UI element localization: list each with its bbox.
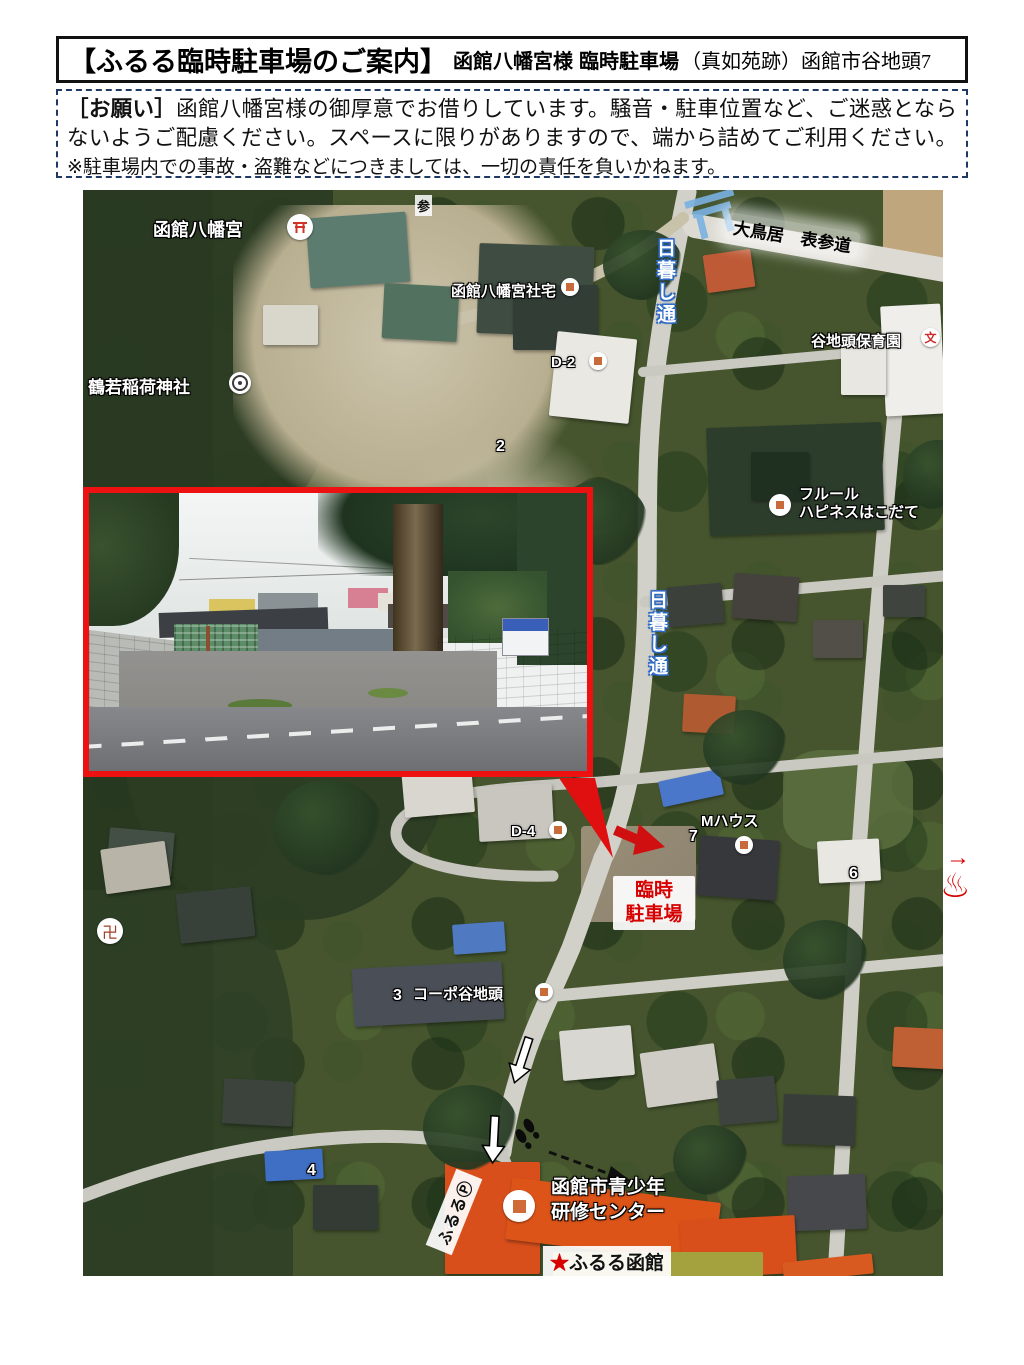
label-road-name-mid: 日暮し通 bbox=[643, 590, 670, 678]
label-num3: 3 bbox=[393, 987, 402, 1005]
label-num6: 6 bbox=[849, 865, 858, 883]
label-sando: 参 bbox=[415, 195, 432, 216]
dashed-route-arrow bbox=[549, 1152, 615, 1176]
shrine-marker-icon bbox=[229, 372, 251, 394]
label-d2: D-2 bbox=[551, 354, 575, 371]
poi-marker-corpo bbox=[535, 983, 553, 1001]
poi-marker-shataku bbox=[561, 278, 579, 296]
notice-box: ［お願い］函館八幡宮様の御厚意でお借りしています。騒音・駐車位置など、ご迷惑とな… bbox=[56, 89, 968, 178]
label-fleur-line2: ハピネスはこだて bbox=[799, 504, 919, 521]
label-inari: 鶴若稲荷神社 bbox=[88, 373, 190, 398]
shrine-marker-dot bbox=[238, 381, 242, 385]
title-shrine-name: 函館八幡宮様 bbox=[453, 45, 573, 74]
torii-marker-icon bbox=[287, 214, 313, 240]
poi-marker-fleur bbox=[769, 494, 791, 516]
red-arrow-head bbox=[633, 824, 665, 855]
white-arrow bbox=[504, 1035, 539, 1086]
label-fururu-hakodate: ★ふるる函館 bbox=[543, 1246, 671, 1276]
poi-marker-d2 bbox=[589, 352, 607, 370]
label-road-name-top: 日暮し通 bbox=[651, 238, 678, 326]
notice-label: ［お願い］ bbox=[67, 97, 176, 121]
label-num4: 4 bbox=[307, 1162, 316, 1180]
torii-glyph bbox=[292, 220, 308, 234]
temple-marker-icon: 卍 bbox=[97, 918, 123, 944]
label-rinji-parking: 臨時駐車場 bbox=[613, 876, 695, 930]
annotations-layer bbox=[83, 190, 943, 1276]
label-fleur-line1: フルール bbox=[799, 486, 859, 503]
onsen-icon: ♨ bbox=[940, 866, 970, 906]
school-marker-icon: 文 bbox=[921, 328, 940, 347]
footprints-icon bbox=[511, 1117, 543, 1152]
notice-disclaimer: ※駐車場内での事故・盗難などにつきましては、一切の責任を負いかねます。 bbox=[67, 157, 726, 178]
label-shataku: 函館八幡宮社宅 bbox=[451, 280, 556, 301]
flyer-page: 【ふるる臨時駐車場のご案内】 函館八幡宮様 臨時駐車場 （真如苑跡）函館市谷地頭… bbox=[0, 0, 1024, 1365]
notice-paragraph: ［お願い］函館八幡宮様の御厚意でお借りしています。騒音・駐車位置など、ご迷惑とな… bbox=[67, 95, 957, 181]
label-hachimangu: 函館八幡宮 bbox=[153, 216, 243, 242]
label-kenshu-line2: 研修センター bbox=[551, 1202, 665, 1223]
label-rinji-line2: 駐車場 bbox=[625, 904, 682, 925]
poi-marker-kenshu bbox=[503, 1190, 535, 1222]
photo-callout-wedge bbox=[559, 778, 613, 858]
page-title: 【ふるる臨時駐車場のご案内】 bbox=[69, 40, 447, 79]
label-num7: 7 bbox=[689, 828, 698, 846]
poi-marker-mhouse bbox=[735, 836, 753, 854]
label-fururu-text: ふるる函館 bbox=[569, 1253, 664, 1274]
shrine-marker-ring bbox=[232, 375, 248, 391]
title-parking: 臨時駐車場 bbox=[579, 45, 679, 74]
white-arrow bbox=[482, 1115, 506, 1163]
label-hoikuen: 谷地頭保育園 bbox=[811, 330, 901, 351]
title-address: （真如苑跡）函館市谷地頭7 bbox=[681, 45, 931, 74]
label-corpo: コーポ谷地頭 bbox=[413, 983, 503, 1004]
star-icon: ★ bbox=[550, 1253, 569, 1274]
label-num2: 2 bbox=[496, 438, 505, 456]
satellite-map: 函館八幡宮 参 函館八幡宮社宅 大鳥居 表参道 日暮し通 日暮し通 谷地頭保育園… bbox=[83, 190, 943, 1276]
label-kenshu-center: 函館市青少年研修センター bbox=[551, 1176, 665, 1225]
label-mhouse: Mハウス bbox=[701, 810, 759, 831]
poi-marker-d4 bbox=[549, 821, 567, 839]
title-box: 【ふるる臨時駐車場のご案内】 函館八幡宮様 臨時駐車場 （真如苑跡）函館市谷地頭… bbox=[56, 36, 968, 83]
notice-body: 函館八幡宮様の御厚意でお借りしています。騒音・駐車位置など、ご迷惑とならないよう… bbox=[67, 97, 957, 150]
label-rinji-line1: 臨時 bbox=[635, 880, 673, 901]
label-kenshu-line1: 函館市青少年 bbox=[551, 1177, 665, 1198]
label-fleur: フルールハピネスはこだて bbox=[799, 486, 919, 522]
label-d4: D-4 bbox=[511, 823, 535, 840]
